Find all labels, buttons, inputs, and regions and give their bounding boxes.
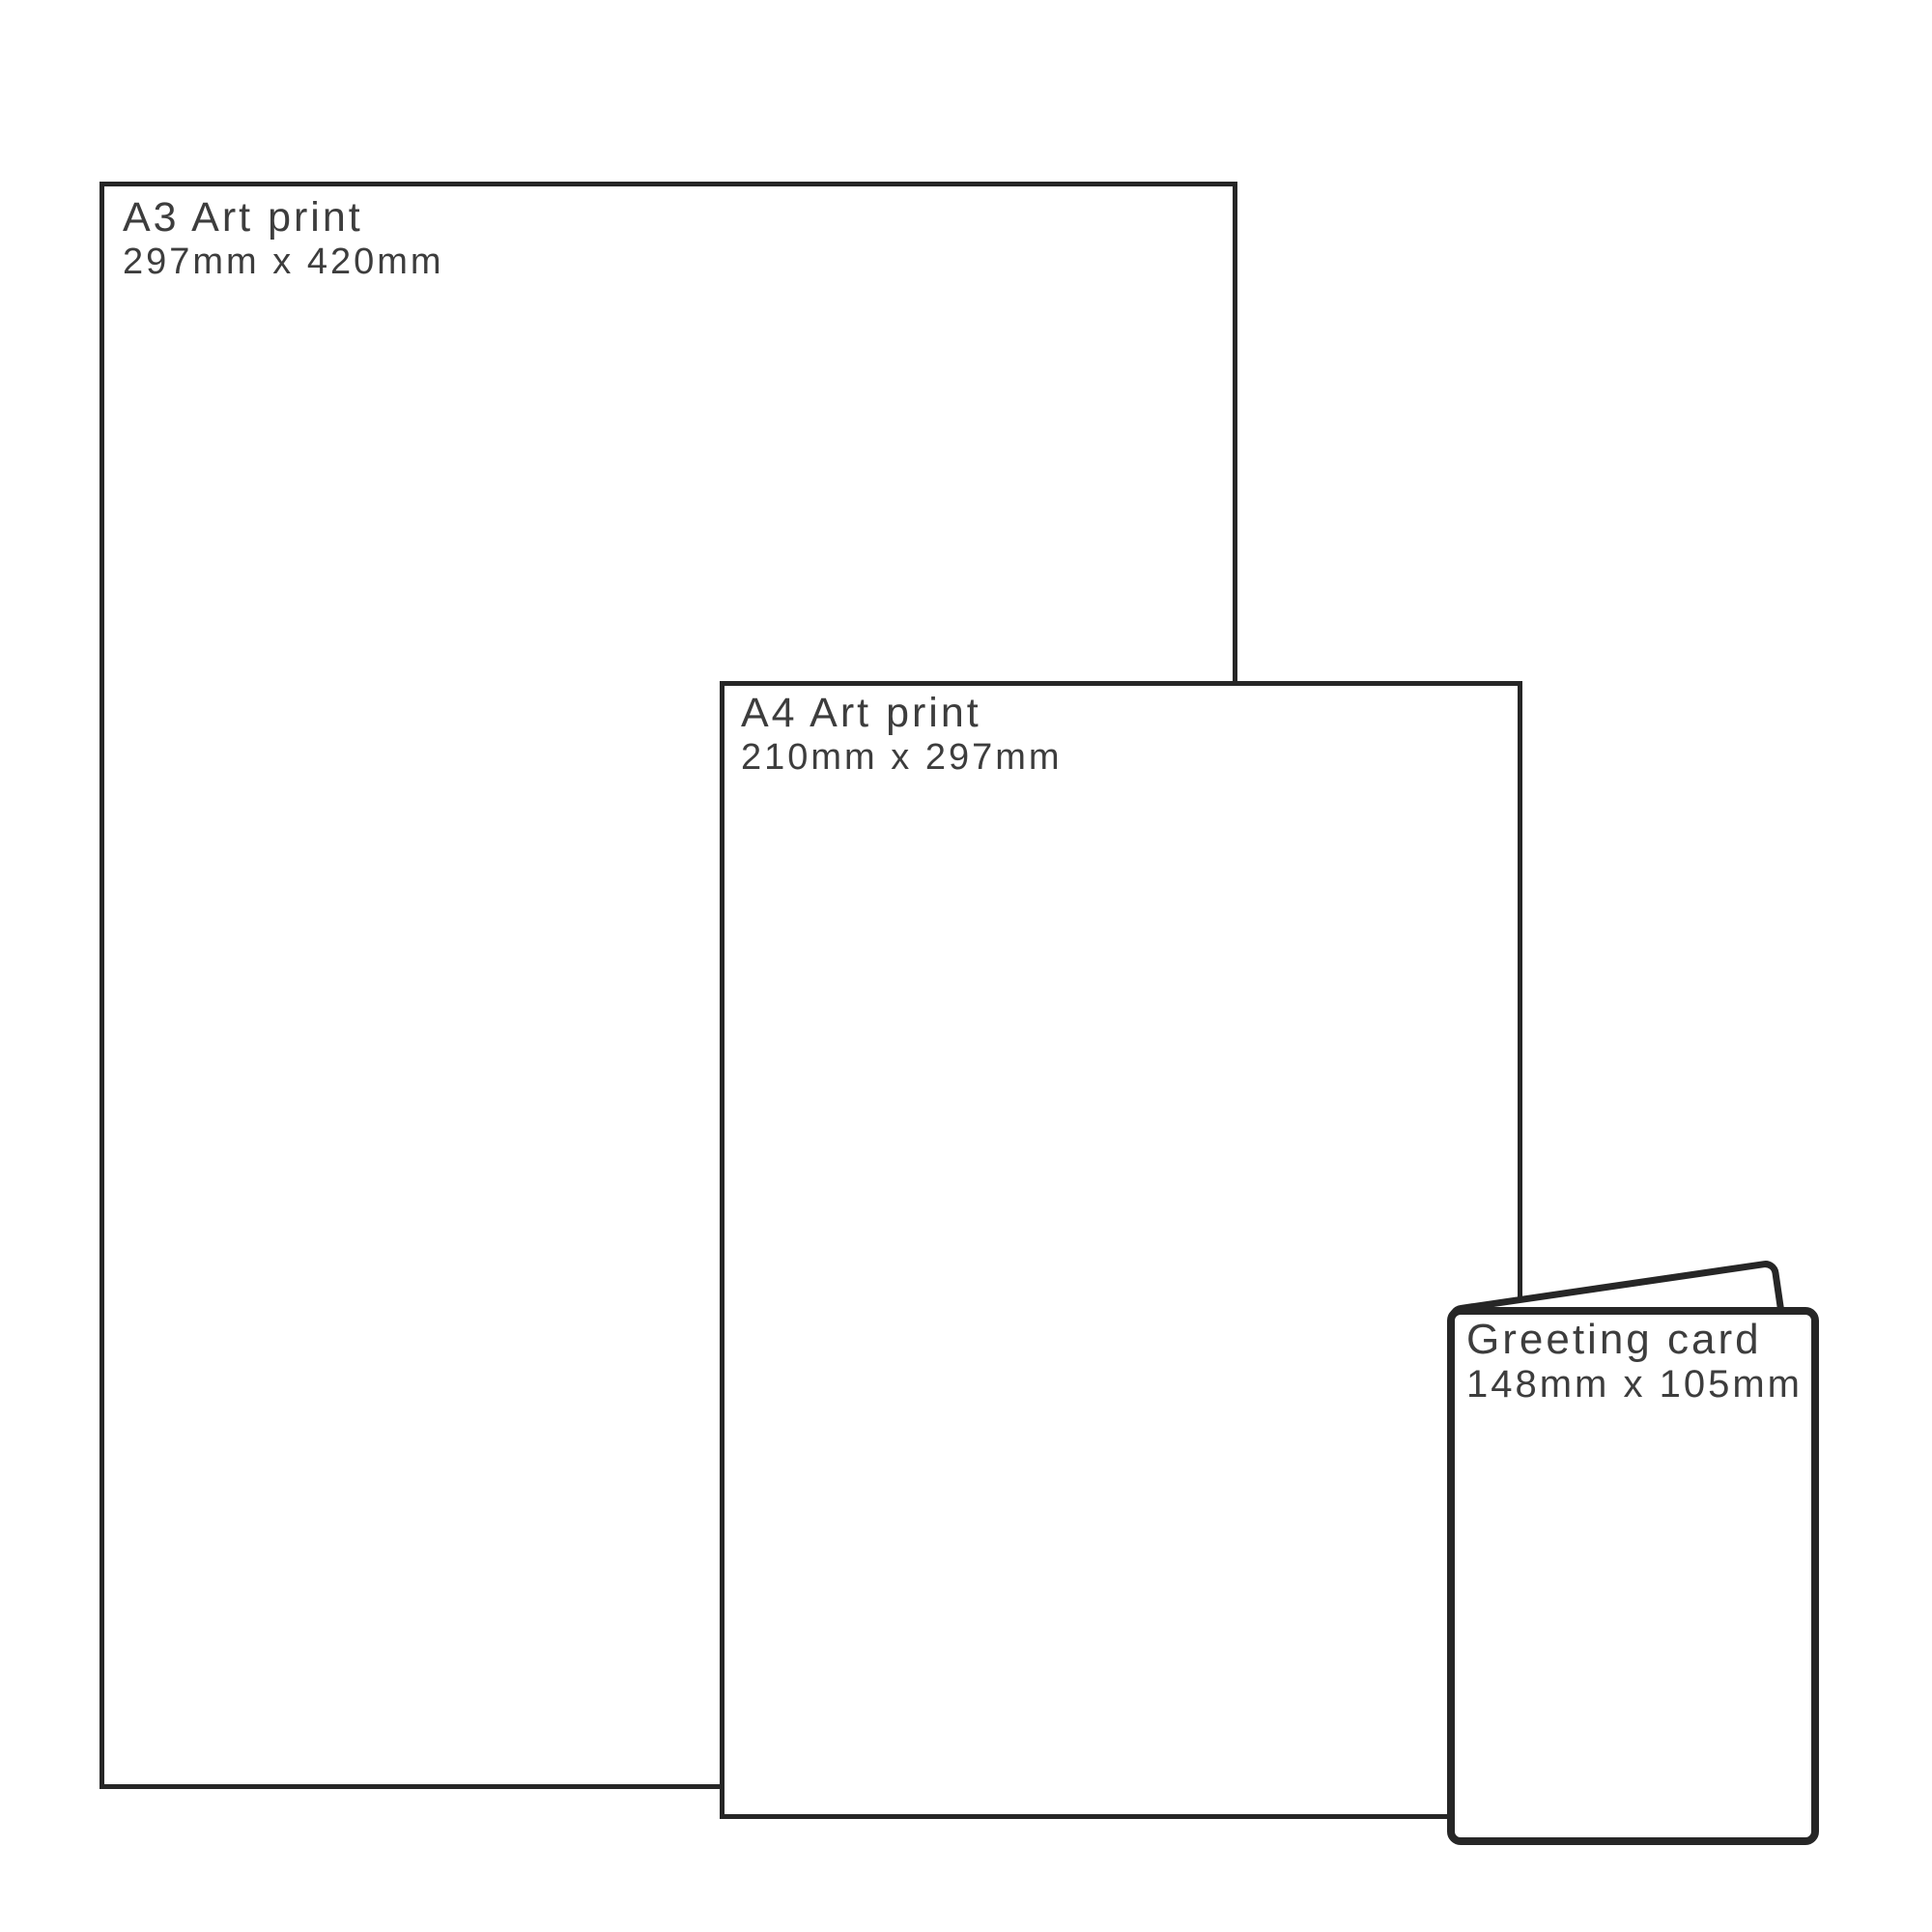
a4-print-dimensions: 210mm x 297mm — [741, 735, 1063, 780]
a3-print-dimensions: 297mm x 420mm — [123, 240, 444, 284]
a3-print-label: A3 Art print 297mm x 420mm — [123, 195, 444, 284]
a4-print-title: A4 Art print — [741, 691, 1063, 735]
greeting-card-title: Greeting card — [1466, 1318, 1803, 1362]
a4-print-label: A4 Art print 210mm x 297mm — [741, 691, 1063, 780]
size-comparison-diagram: A3 Art print 297mm x 420mm A4 Art print … — [0, 0, 1932, 1932]
greeting-card-label: Greeting card 148mm x 105mm — [1466, 1318, 1803, 1406]
greeting-card-dimensions: 148mm x 105mm — [1466, 1362, 1803, 1406]
a4-print-outline — [720, 681, 1522, 1819]
a3-print-title: A3 Art print — [123, 195, 444, 240]
